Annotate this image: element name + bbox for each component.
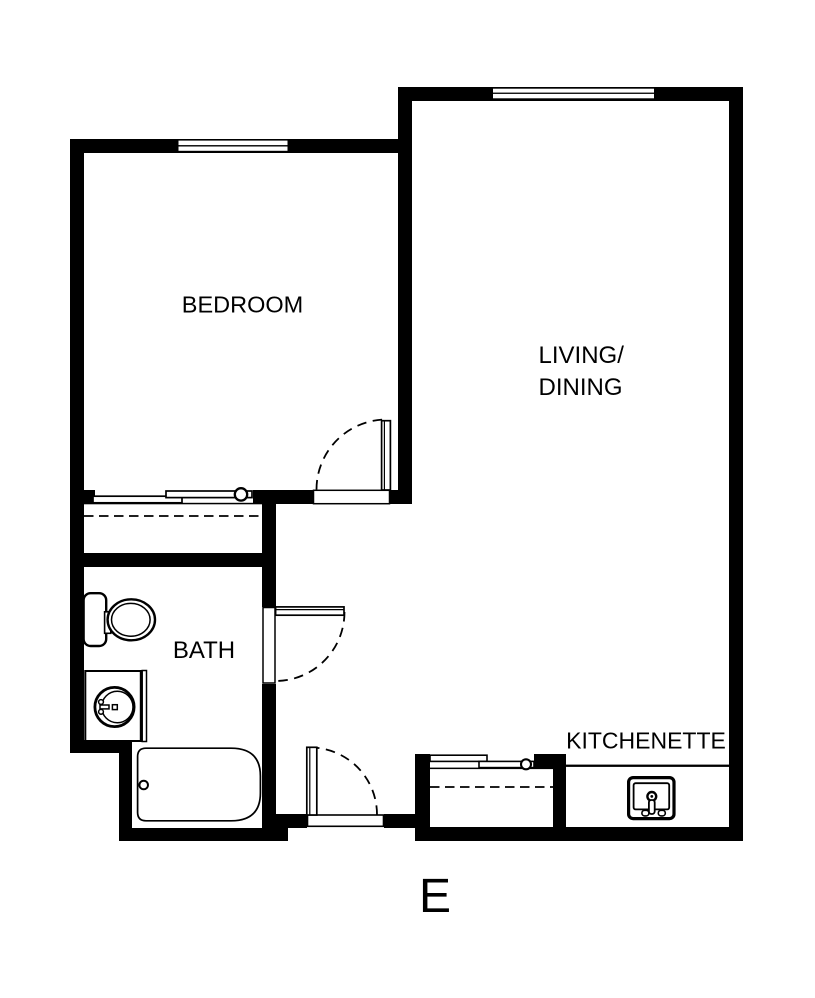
svg-text:KITCHENETTE: KITCHENETTE: [566, 727, 726, 753]
svg-text:LIVING/: LIVING/: [539, 342, 625, 369]
svg-text:BEDROOM: BEDROOM: [182, 292, 303, 318]
svg-text:DINING: DINING: [539, 374, 623, 401]
svg-text:BATH: BATH: [173, 637, 235, 664]
svg-text:E: E: [419, 870, 451, 923]
